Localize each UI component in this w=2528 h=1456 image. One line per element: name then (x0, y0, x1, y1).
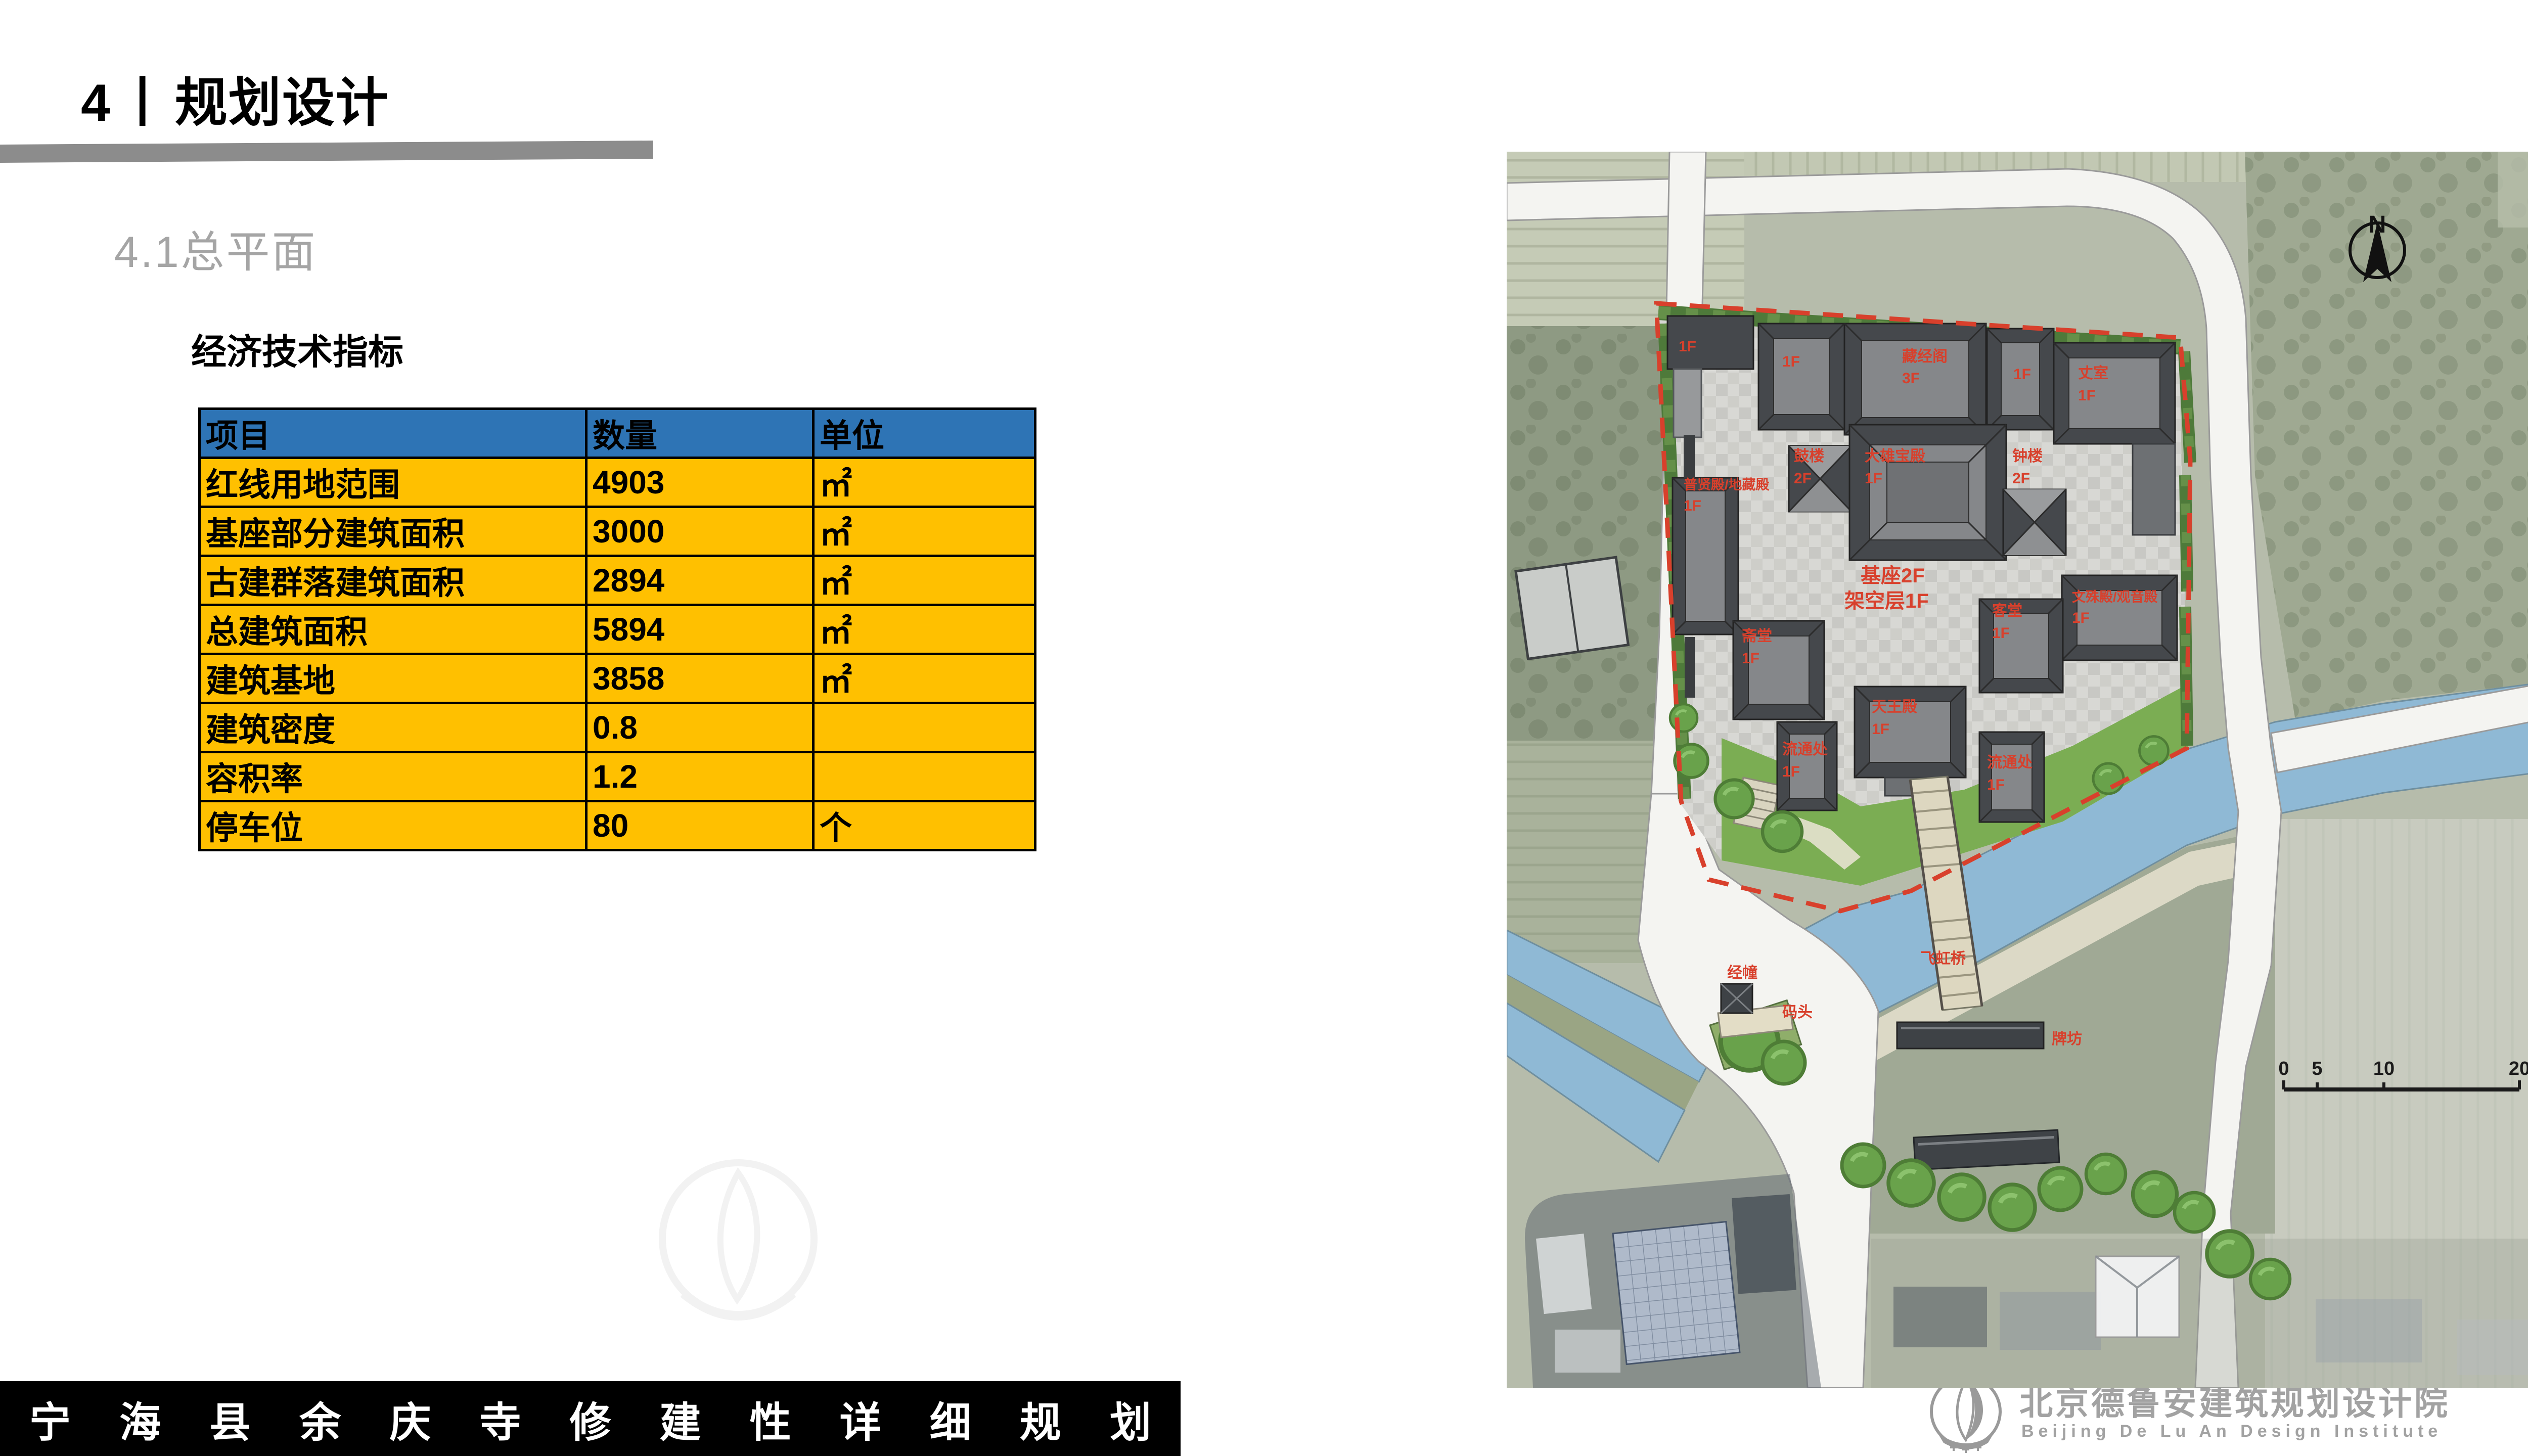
table-cell: 停车位 (200, 801, 586, 850)
svg-text:0: 0 (2278, 1058, 2289, 1079)
svg-text:大雄宝殿: 大雄宝殿 (1865, 447, 1925, 465)
svg-text:1F: 1F (1742, 650, 1759, 667)
svg-text:1F: 1F (1782, 353, 1800, 370)
institute-name-en: Beijing De Lu An Design Institute (2021, 1422, 2442, 1441)
table-cell: ㎡ (814, 458, 1035, 507)
svg-text:1F: 1F (1987, 777, 2005, 793)
section-title: 规划设计 (175, 74, 389, 132)
watermark-logo (647, 1153, 829, 1345)
table-row: 容积率1.2 (200, 752, 1035, 801)
table-cell: 古建群落建筑面积 (200, 556, 586, 605)
svg-text:1F: 1F (1684, 497, 1701, 514)
table-row: 建筑基地3858㎡ (200, 654, 1035, 703)
table-cell: 建筑密度 (200, 703, 586, 752)
page-title: 4丨规划设计 (81, 60, 389, 136)
title-separator: 丨 (116, 74, 170, 132)
table-header-cell: 项目 (200, 409, 586, 458)
footer-char: 庆 (389, 1389, 431, 1449)
table-cell: 总建筑面积 (200, 605, 586, 654)
footer-char: 修 (569, 1389, 611, 1449)
table-header-cell: 单位 (814, 409, 1035, 458)
table-cell: 1.2 (586, 752, 814, 801)
indicators-table-body: 红线用地范围4903㎡基座部分建筑面积3000㎡古建群落建筑面积2894㎡总建筑… (200, 458, 1035, 850)
svg-text:10: 10 (2373, 1058, 2395, 1079)
site-plan-map: 1F 1F 藏经阁 3F 1F 丈室 1F 鼓楼 2F 大雄宝殿 1F 钟楼 2… (1507, 152, 2528, 1388)
table-cell: 4903 (586, 458, 814, 507)
footer-char: 海 (119, 1389, 161, 1449)
table-cell: 3858 (586, 654, 814, 703)
svg-text:5: 5 (2312, 1058, 2322, 1079)
indicators-heading: 经济技术指标 (191, 324, 403, 375)
table-cell: 80 (586, 801, 814, 850)
table-cell: ㎡ (814, 654, 1035, 703)
footer-char: 性 (750, 1389, 791, 1449)
section-number: 4 (81, 74, 111, 132)
svg-text:丈室: 丈室 (2078, 365, 2108, 382)
table-cell (814, 703, 1035, 752)
table-cell: ㎡ (814, 605, 1035, 654)
svg-text:1F: 1F (1679, 338, 1696, 355)
table-cell: 0.8 (586, 703, 814, 752)
svg-text:藏经阁: 藏经阁 (1902, 348, 1948, 365)
footer-char: 划 (1110, 1389, 1151, 1449)
footer-char: 规 (1020, 1389, 1061, 1449)
table-cell: 2894 (586, 556, 814, 605)
footer-char: 宁 (29, 1389, 71, 1449)
footer-char: 建 (660, 1389, 701, 1449)
svg-text:流通处: 流通处 (1987, 754, 2033, 771)
table-cell: 3000 (586, 507, 814, 556)
svg-text:客堂: 客堂 (1992, 602, 2022, 619)
svg-text:牌坊: 牌坊 (2052, 1030, 2082, 1048)
table-row: 基座部分建筑面积3000㎡ (200, 507, 1035, 556)
footer-char: 详 (840, 1389, 881, 1449)
indicators-table-head: 项目数量单位 (200, 409, 1035, 458)
svg-text:普贤殿/地藏殿: 普贤殿/地藏殿 (1684, 477, 1770, 492)
svg-text:码头: 码头 (1782, 1004, 1813, 1021)
svg-text:钟楼: 钟楼 (2012, 448, 2043, 465)
table-cell: 容积率 (200, 752, 586, 801)
svg-text:1F: 1F (2013, 366, 2031, 383)
svg-text:1F: 1F (1872, 721, 1889, 738)
table-row: 总建筑面积5894㎡ (200, 605, 1035, 654)
table-header-cell: 数量 (586, 409, 814, 458)
table-cell: ㎡ (814, 556, 1035, 605)
svg-text:经幢: 经幢 (1727, 964, 1757, 981)
svg-text:2F: 2F (2012, 470, 2030, 487)
title-underline-bar (0, 141, 653, 163)
svg-text:1F: 1F (2078, 387, 2096, 404)
svg-text:1F: 1F (2072, 610, 2090, 626)
svg-text:天王殿: 天王殿 (1872, 699, 1917, 715)
white-house (2096, 1256, 2179, 1337)
table-cell: 红线用地范围 (200, 458, 586, 507)
svg-text:3F: 3F (1902, 370, 1920, 387)
svg-text:20: 20 (2509, 1058, 2528, 1079)
footer-char: 寺 (479, 1389, 521, 1449)
svg-text:基座2F: 基座2F (1861, 565, 1925, 587)
table-cell: 基座部分建筑面积 (200, 507, 586, 556)
indicators-table: 项目数量单位 红线用地范围4903㎡基座部分建筑面积3000㎡古建群落建筑面积2… (198, 407, 1036, 851)
table-row: 停车位80个 (200, 801, 1035, 850)
table-row: 红线用地范围4903㎡ (200, 458, 1035, 507)
footer-char: 细 (930, 1389, 971, 1449)
subtitle: 4.1总平面 (114, 216, 318, 280)
svg-text:1F: 1F (1782, 763, 1800, 780)
svg-text:鼓楼: 鼓楼 (1794, 448, 1824, 465)
svg-text:飞虹桥: 飞虹桥 (1920, 950, 1966, 967)
svg-text:架空层1F: 架空层1F (1844, 590, 1929, 612)
footer-char: 余 (299, 1389, 341, 1449)
svg-text:2F: 2F (1794, 470, 1812, 487)
footer-char: 县 (209, 1389, 251, 1449)
table-row: 建筑密度0.8 (200, 703, 1035, 752)
svg-text:文殊殿/观音殿: 文殊殿/观音殿 (2072, 589, 2158, 605)
svg-text:斋堂: 斋堂 (1741, 628, 1772, 645)
footer-title-bar: 宁海县余庆寺修建性详细规划 (0, 1381, 1181, 1456)
warehouse (1516, 557, 1628, 659)
archway (1897, 1022, 2044, 1049)
table-cell: 个 (814, 801, 1035, 850)
svg-text:1F: 1F (1865, 470, 1882, 487)
table-cell: 建筑基地 (200, 654, 586, 703)
svg-text:流通处: 流通处 (1782, 741, 1828, 758)
table-cell: ㎡ (814, 507, 1035, 556)
table-cell (814, 752, 1035, 801)
svg-text:1F: 1F (1992, 625, 2010, 642)
table-cell: 5894 (586, 605, 814, 654)
table-row: 古建群落建筑面积2894㎡ (200, 556, 1035, 605)
